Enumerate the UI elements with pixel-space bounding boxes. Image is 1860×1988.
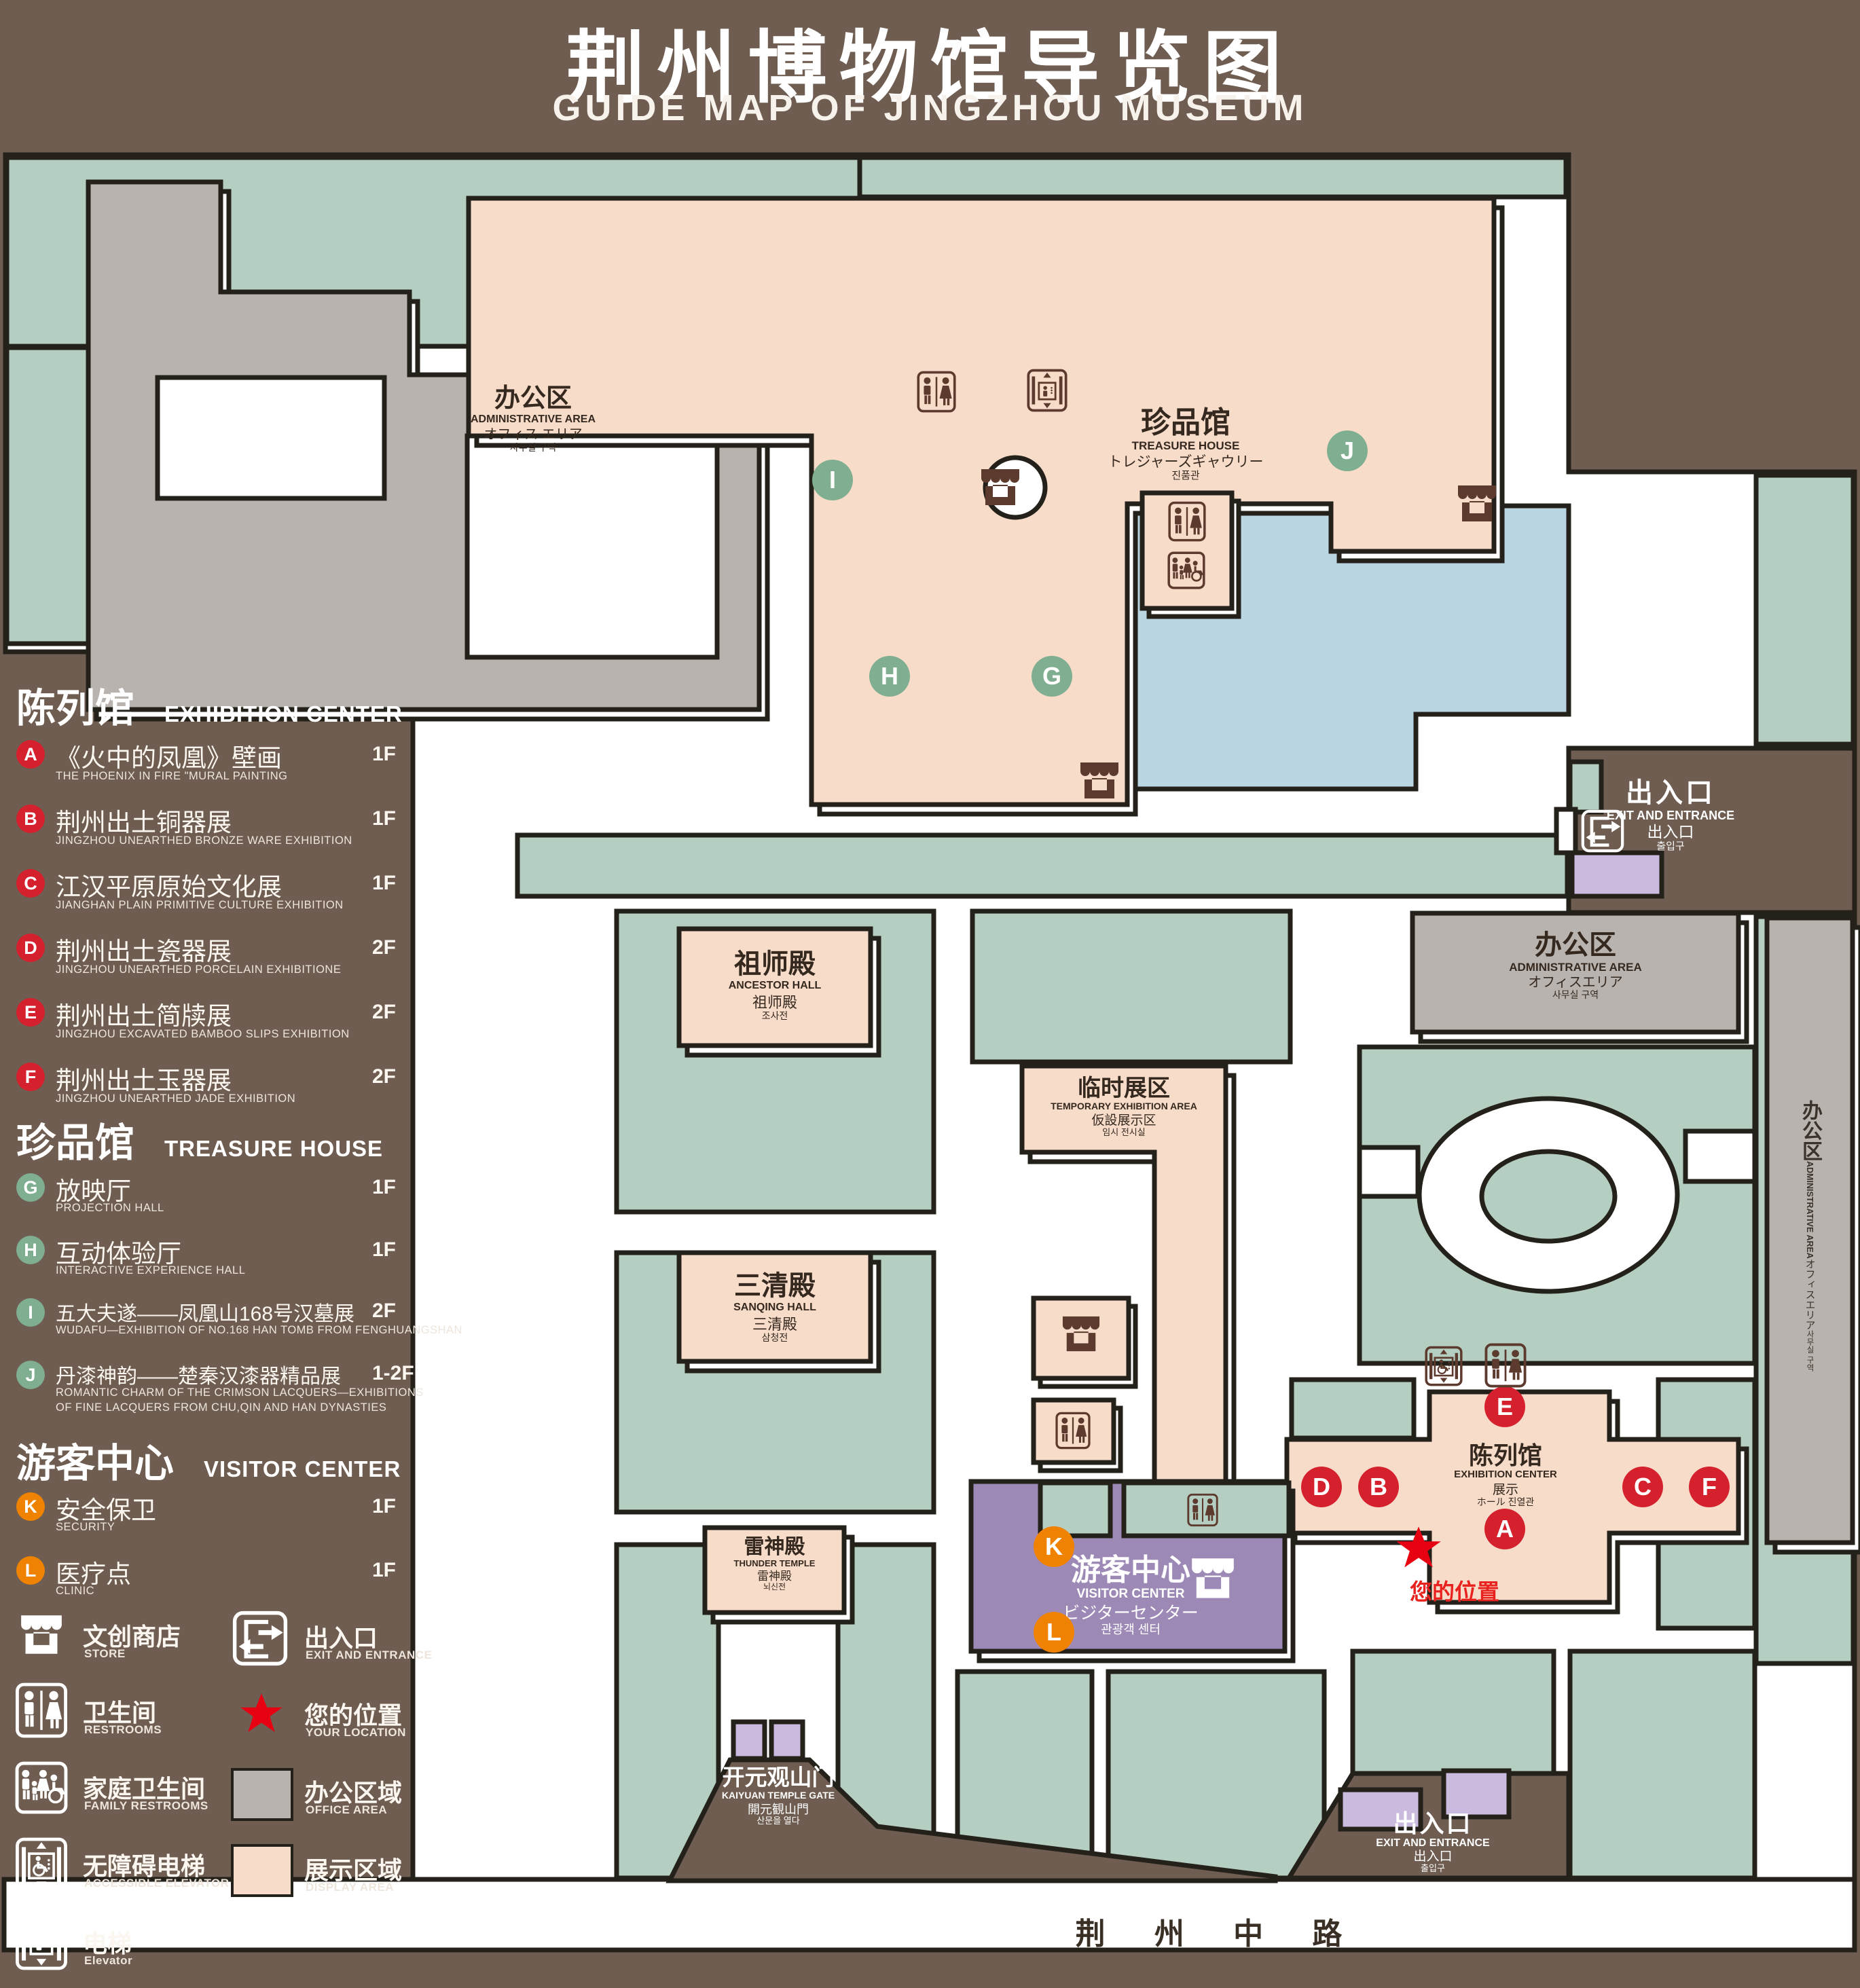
legend-item-caption: INTERACTIVE EXPERIENCE HALL: [56, 1264, 245, 1277]
legend-item-floor: 1F: [372, 1176, 396, 1199]
your-location-star: [239, 1692, 284, 1734]
legend-marker-C: C: [16, 869, 45, 898]
label-sanqing-hall: 三清殿 SANQING HALL 三清殿 삼청전: [679, 1271, 871, 1344]
building-east-lavender: [1572, 853, 1662, 896]
map-marker-A: A: [1484, 1509, 1525, 1549]
legend-marker-F: F: [16, 1063, 45, 1091]
family-restrooms-icon: [1166, 551, 1207, 589]
map-marker-H: H: [869, 656, 910, 697]
legend-item-title: 荆州出土玉器展: [56, 1060, 232, 1097]
legend-section-exhibition-center: 陈列馆EXHIBITION CENTER: [16, 676, 403, 733]
legend-item-floor: 2F: [372, 1300, 396, 1323]
label-admin-mid: 办公区 ADMINISTRATIVE AREA オフィスエリア 사무실 구역: [1477, 930, 1674, 1001]
legend-item-floor: 1F: [372, 743, 396, 766]
legend-item-floor: 2F: [372, 1065, 396, 1088]
store-icon: [1188, 1556, 1237, 1601]
legend-item-caption: PROJECTION HALL: [56, 1202, 164, 1215]
legend-item-title: 五大夫遂——凤凰山168号汉墓展: [56, 1297, 354, 1327]
legend-marker-G: G: [16, 1173, 45, 1202]
legend-item-caption: JINGZHOU UNEARTHED JADE EXHIBITION: [56, 1092, 295, 1105]
store-icon: [1455, 483, 1499, 524]
elevator-icon: [15, 1915, 68, 1970]
label-admin-right: 办公区 ADMINISTRATIVE AREA オフィスエリア 사무실 구역: [1770, 964, 1850, 1507]
legend-marker-L: L: [16, 1556, 45, 1585]
label-admin-nw: 办公区 ADMINISTRATIVE AREA オフィス エリア 사무실 구역: [445, 384, 621, 454]
map-marker-J: J: [1327, 430, 1368, 471]
restrooms-icon: [1055, 1411, 1091, 1450]
map-marker-L: L: [1034, 1612, 1074, 1653]
east-gate-gap: [1556, 809, 1575, 853]
restrooms-icon: [15, 1682, 68, 1738]
restrooms-icon: [1187, 1492, 1218, 1528]
restrooms-icon: [1168, 501, 1206, 542]
legend-marker-E: E: [16, 998, 45, 1027]
legend-item-caption: CLINIC: [56, 1585, 94, 1598]
legend-symbol-caption: Elevator: [84, 1954, 132, 1968]
store-icon: [978, 467, 1023, 508]
your-location-label: 您的位置: [1366, 1574, 1543, 1606]
legend-item-floor: 1F: [372, 1495, 396, 1518]
legend-item-floor: 1F: [372, 807, 396, 830]
label-temporary-exhibition: 临时展区 TEMPORARY EXHIBITION AREA 仮設展示区 임시 …: [1022, 1075, 1226, 1138]
legend-symbol-caption: RESTROOMS: [84, 1723, 162, 1737]
legend-item-floor: 1F: [372, 872, 396, 895]
map-marker-F: F: [1689, 1467, 1730, 1507]
legend-section-treasure-house: 珍品馆TREASURE HOUSE: [16, 1111, 383, 1168]
legend-item-caption: OF FINE LACQUERS FROM CHU,QIN AND HAN DY…: [56, 1401, 386, 1414]
legend-symbol-caption: OFFICE AREA: [306, 1803, 387, 1817]
map-marker-D: D: [1301, 1467, 1342, 1507]
map-marker-E: E: [1484, 1386, 1525, 1427]
legend-item-floor: 1-2F: [372, 1362, 414, 1385]
legend-symbol-caption: FAMILY RESTROOMS: [84, 1799, 208, 1813]
legend-item-title: 荆州出土瓷器展: [56, 931, 232, 968]
legend-item-caption: JIANGHAN PLAIN PRIMITIVE CULTURE EXHIBIT…: [56, 899, 344, 912]
elevator-icon: [1027, 368, 1068, 413]
restrooms-icon: [917, 371, 956, 413]
legend-item-floor: 1F: [372, 1559, 396, 1582]
legend-marker-H: H: [16, 1236, 45, 1264]
legend-symbol-caption: EXIT AND ENTRANCE: [306, 1649, 432, 1662]
legend-item-floor: 1F: [372, 1238, 396, 1262]
accessible-elevator-icon: [15, 1837, 68, 1893]
your-location-star: [1395, 1525, 1442, 1570]
legend-marker-K: K: [16, 1492, 45, 1521]
legend-marker-B: B: [16, 805, 45, 833]
map-marker-I: I: [812, 460, 853, 500]
legend-symbol-caption: YOUR LOCATION: [306, 1726, 406, 1739]
legend-item-caption: SECURITY: [56, 1521, 115, 1534]
legend-item-title: 江汉平原原始文化展: [56, 866, 282, 903]
map-marker-C: C: [1622, 1467, 1663, 1507]
store-icon: [1077, 760, 1122, 801]
label-thunder-temple: 雷神殿 THUNDER TEMPLE 雷神殿 뇌신전: [705, 1536, 844, 1592]
restrooms-icon: [1484, 1343, 1527, 1388]
legend-item-title: 丹漆神韵——楚秦汉漆器精品展: [56, 1359, 341, 1389]
legend-item-floor: 2F: [372, 1001, 396, 1024]
legend-marker-I: I: [16, 1298, 45, 1327]
office-area-swatch: [231, 1768, 293, 1821]
map-marker-K: K: [1034, 1526, 1074, 1567]
label-exhibition-center: 陈列馆 EXHIBITION CENTER 展示 ホール 진열관: [1421, 1442, 1590, 1508]
legend-item-caption: JINGZHOU EXCAVATED BAMBOO SLIPS EXHIBITI…: [56, 1028, 350, 1041]
legend-item-caption: WUDAFU—EXHIBITION OF NO.168 HAN TOMB FRO…: [56, 1324, 462, 1337]
map-marker-G: G: [1032, 656, 1072, 697]
legend-item-caption: THE PHOENIX IN FIRE "MURAL PAINTING: [56, 770, 287, 783]
legend-symbol-caption: DISPLAY AREA: [306, 1881, 394, 1894]
legend-marker-A: A: [16, 740, 45, 769]
legend-section-visitor-center: 游客中心VISITOR CENTER: [16, 1431, 401, 1488]
legend-item-title: 荆州出土简牍展: [56, 995, 232, 1032]
exit-icon: [1581, 809, 1624, 853]
label-ancestor-hall: 祖师殿 ANCESTOR HALL 祖师殿 조사전: [679, 949, 871, 1022]
legend-item-title: 荆州出土铜器展: [56, 802, 232, 839]
map-marker-B: B: [1358, 1467, 1399, 1507]
legend-item-floor: 2F: [372, 936, 396, 959]
legend-symbol-caption: ACCESSIBLE ELEVATOR: [84, 1877, 230, 1890]
road-name: 荆 州 中 路: [1059, 1909, 1379, 1953]
legend-item-caption: ROMANTIC CHARM OF THE CRIMSON LACQUERS—E…: [56, 1386, 424, 1399]
legend-symbol-caption: STORE: [84, 1647, 126, 1661]
legend-marker-D: D: [16, 934, 45, 962]
label-treasure-house: 珍品馆 TREASURE HOUSE トレジャーズギャウリー 진품관: [1097, 406, 1274, 482]
legend-item-caption: JINGZHOU UNEARTHED BRONZE WARE EXHIBITIO…: [56, 834, 352, 847]
exit-icon: [232, 1610, 288, 1666]
display-area-swatch: [231, 1844, 293, 1897]
legend-marker-J: J: [16, 1361, 45, 1389]
store-icon: [1059, 1314, 1103, 1354]
legend-item-title: 《火中的凤凰》壁画: [56, 737, 282, 774]
family-restrooms-icon: [15, 1761, 68, 1814]
label-exit-south: 出入口 EXIT AND ENTRANCE 出入口 출입구: [1358, 1810, 1508, 1874]
label-kaiyuan-gate: 开元观山门 KAIYUAN TEMPLE GATE 開元観山門 산문을 열다: [699, 1765, 857, 1826]
store-icon: [18, 1613, 65, 1657]
accessible-elevator-icon: [1425, 1346, 1463, 1386]
legend-item-caption: JINGZHOU UNEARTHED PORCELAIN EXHIBITIONE: [56, 963, 341, 976]
